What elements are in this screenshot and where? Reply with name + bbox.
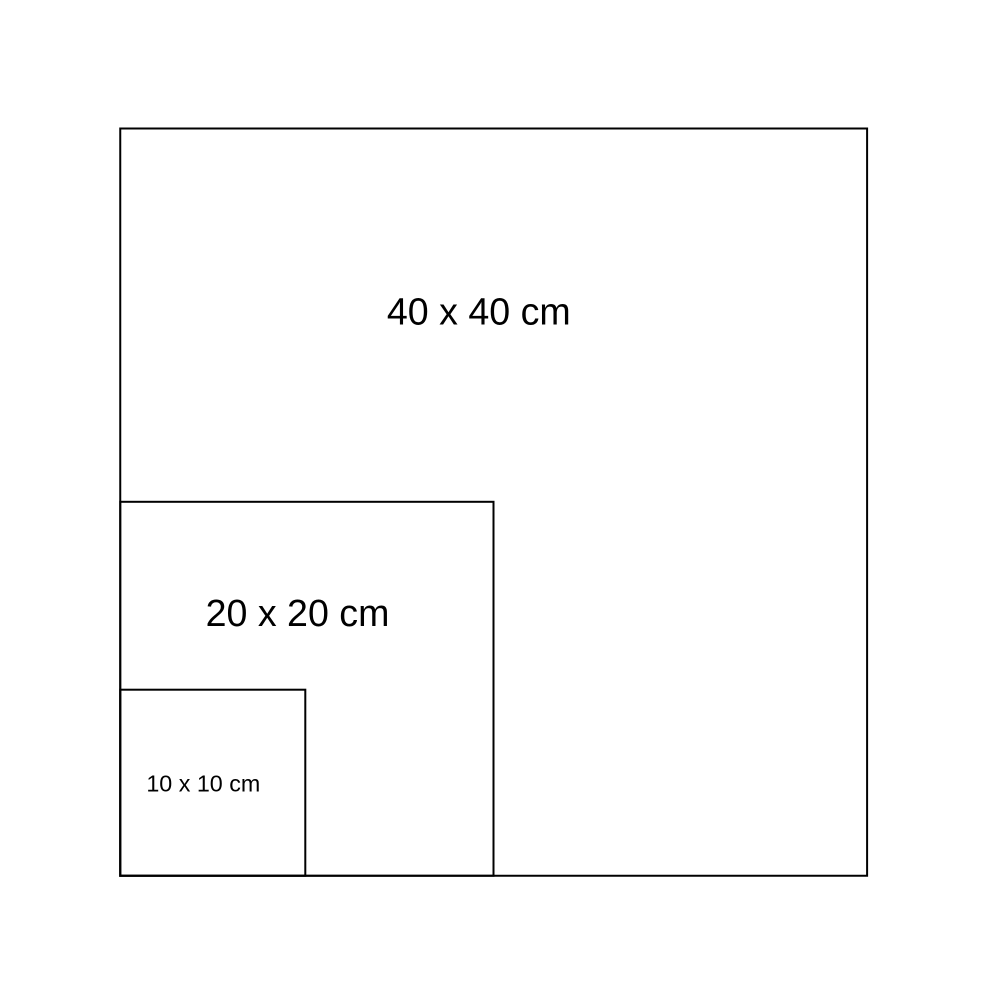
svg-text:40 x 40 cm: 40 x 40 cm [387,290,571,332]
svg-text:20 x 20 cm: 20 x 20 cm [206,592,390,634]
svg-text:10 x 10 cm: 10 x 10 cm [146,771,260,797]
